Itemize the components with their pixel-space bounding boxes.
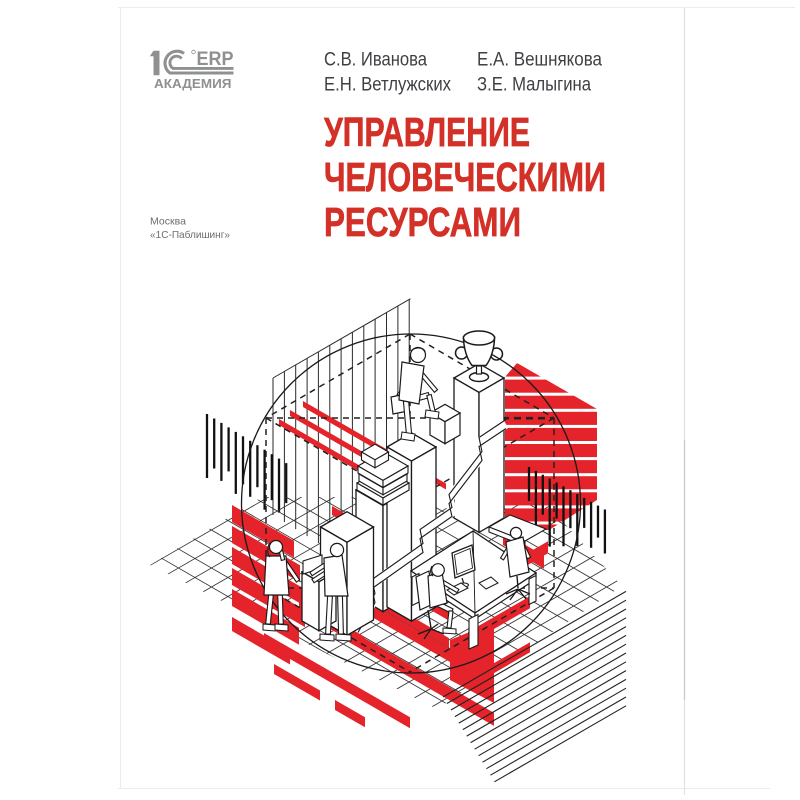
svg-text:АКАДЕМИЯ: АКАДЕМИЯ xyxy=(154,77,232,91)
svg-text:З.Е. Малыгина: З.Е. Малыгина xyxy=(477,75,591,96)
svg-text:УПРАВЛЕНИЕ: УПРАВЛЕНИЕ xyxy=(324,109,530,155)
svg-text:Москва: Москва xyxy=(150,216,186,228)
svg-text:ЧЕЛОВЕЧЕСКИМИ: ЧЕЛОВЕЧЕСКИМИ xyxy=(324,154,606,200)
svg-text:Е.А. Вешнякова: Е.А. Вешнякова xyxy=(477,50,602,71)
svg-text:С.В. Иванова: С.В. Иванова xyxy=(324,50,427,71)
svg-text:РЕСУРСАМИ: РЕСУРСАМИ xyxy=(324,199,521,245)
svg-text:«1С-Паблишинг»: «1С-Паблишинг» xyxy=(150,229,230,241)
svg-text:Е.Н. Ветлужских: Е.Н. Ветлужских xyxy=(324,75,451,96)
svg-text:ERP: ERP xyxy=(197,49,234,70)
